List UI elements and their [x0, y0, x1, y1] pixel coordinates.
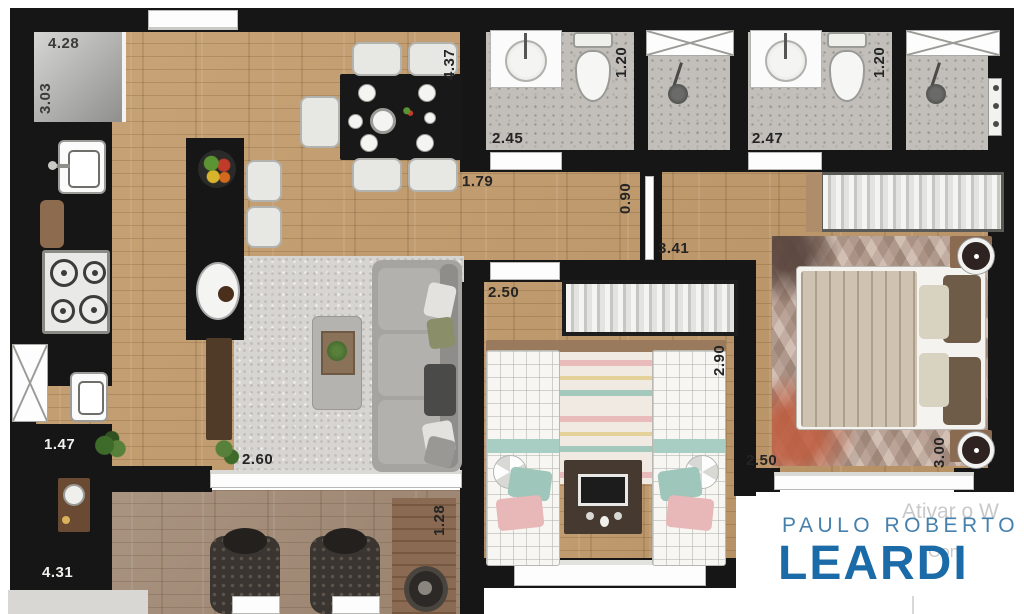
door-bathroom2	[748, 152, 822, 170]
serving-platter	[196, 262, 240, 320]
logo-block: Ativar o W Cont PAULO ROBERTO LEARDI	[756, 492, 1024, 614]
pillow	[919, 285, 949, 339]
shower-knob-icon	[993, 85, 999, 91]
watermark-line-fragment	[912, 596, 914, 614]
knob-icon	[600, 516, 609, 527]
door-bedroom2	[490, 262, 560, 280]
plate-icon	[348, 114, 363, 129]
shower-knob-icon	[993, 103, 999, 109]
dim-balcony-depth: 1.28	[432, 492, 447, 536]
double-bed	[796, 266, 986, 430]
dim-master-width: 2.50	[746, 453, 777, 468]
shower-head-icon	[668, 84, 688, 104]
wardrobe-master	[820, 172, 1004, 232]
basket-icon	[63, 484, 85, 506]
faucet-icon	[524, 33, 527, 59]
burner-icon	[79, 295, 108, 324]
cup-icon	[424, 112, 436, 124]
plant-icon	[92, 430, 128, 464]
tv-icon	[578, 474, 628, 506]
dim-living-width: 2.60	[242, 452, 273, 467]
stove	[42, 250, 110, 334]
jar-icon	[62, 516, 70, 524]
pillow	[426, 316, 456, 349]
lamp-icon	[958, 432, 994, 468]
fruit-bowl-icon	[198, 150, 236, 188]
knob-icon	[586, 512, 594, 520]
corridor-door	[645, 176, 654, 260]
shower-head-icon	[926, 84, 946, 104]
dim-bath1-width: 2.45	[492, 131, 523, 146]
dining-chair	[352, 158, 402, 192]
sideboard	[206, 338, 232, 440]
balcony-side-table	[332, 596, 380, 614]
dim-service-width: 1.47	[44, 437, 75, 452]
pillow	[919, 353, 949, 407]
toilet-tank	[827, 32, 867, 48]
pillow	[495, 495, 544, 532]
burner-icon	[51, 299, 75, 323]
wardrobe-end-panel	[806, 172, 822, 232]
lamp-icon	[958, 238, 994, 274]
plant-icon	[212, 436, 242, 468]
toilet-tank	[573, 32, 613, 48]
wall-bath2-divider	[892, 30, 906, 152]
dining-chair	[408, 158, 458, 192]
window-shower2	[906, 30, 1000, 56]
plate-icon	[416, 134, 434, 152]
dining-chair	[352, 42, 402, 76]
armchair-headrest	[323, 528, 367, 554]
sofa	[372, 260, 462, 472]
outside-pad	[8, 590, 148, 614]
door-bathroom1	[490, 152, 562, 170]
dim-bedroom2-width: 2.50	[488, 285, 519, 300]
armchair-headrest	[223, 528, 267, 554]
window-shower1	[646, 30, 734, 56]
dim-dining-wall: 4.37	[442, 32, 457, 80]
shower-knob-icon	[993, 121, 999, 127]
single-bed-left	[486, 350, 560, 566]
faucet-icon	[784, 33, 787, 59]
laundry-tub	[70, 372, 108, 422]
bed-blanket	[801, 271, 917, 427]
throw-blanket	[424, 364, 456, 416]
dining-table	[340, 74, 462, 160]
faucet-icon	[48, 161, 57, 170]
floor-plan: 4.28 3.03 4.37 1.79 2.45 1.20 2.47 1.20 …	[0, 0, 1024, 614]
pillow	[665, 495, 714, 532]
burner-icon	[50, 259, 78, 287]
dim-bath1-depth: 1.20	[614, 34, 629, 78]
island-stool	[246, 206, 282, 248]
toilet-bowl	[829, 50, 865, 102]
island-stool	[246, 160, 282, 202]
wall-dining-right	[460, 30, 486, 158]
dim-service-length: 4.31	[42, 565, 73, 580]
cutting-board	[40, 200, 64, 248]
dim-bedroom2-depth: 2.90	[712, 332, 727, 376]
toilet	[570, 32, 616, 106]
window-top	[148, 10, 238, 30]
window-x-icon	[13, 345, 47, 421]
plate-icon	[418, 84, 436, 102]
coffee-pot-icon	[218, 286, 234, 302]
toilet-bowl	[575, 50, 611, 102]
shower2-floor	[906, 56, 988, 150]
bed-runner	[653, 439, 725, 453]
brand-name: LEARDI	[778, 536, 969, 591]
shower1-floor	[648, 56, 730, 150]
wall-left	[10, 8, 36, 590]
plant-icon	[327, 341, 347, 361]
bathroom2-vanity	[750, 30, 822, 88]
knob-icon	[614, 512, 622, 520]
kitchen-sink	[58, 140, 106, 194]
table-center-icon	[418, 581, 432, 595]
dim-corridor-opening: 0.90	[618, 172, 633, 214]
wall-bedroom2-left	[460, 282, 484, 614]
single-bed-right	[652, 350, 726, 566]
window-master	[774, 472, 974, 490]
service-cabinet	[58, 478, 90, 532]
dim-corridor-length: 3.41	[658, 241, 689, 256]
burner-icon	[83, 261, 106, 284]
flower-vase-icon	[402, 106, 414, 118]
shower-panel	[988, 78, 1002, 136]
plate-icon	[360, 134, 378, 152]
plate-icon	[358, 84, 376, 102]
centerpiece-plate-icon	[370, 108, 396, 134]
window-laundry	[12, 344, 48, 422]
bed-runner	[487, 439, 559, 453]
window-x-icon	[907, 31, 999, 55]
balcony-side-table	[232, 596, 280, 614]
brand-line1: PAULO ROBERTO	[782, 514, 1019, 538]
dresser-tv	[564, 460, 642, 534]
window-x-icon	[647, 31, 733, 55]
ottoman-table	[312, 316, 362, 410]
dim-master-depth: 3.00	[932, 424, 947, 468]
dining-chair	[300, 96, 340, 148]
dim-hall-opening: 1.79	[462, 174, 493, 189]
dim-kitchen-top: 4.28	[48, 36, 79, 51]
wardrobe-bedroom2	[562, 280, 738, 336]
sink-basin	[68, 150, 100, 188]
toilet	[824, 32, 870, 106]
dim-bath2-width: 2.47	[752, 131, 783, 146]
dim-kitchen-left: 3.03	[38, 66, 53, 114]
dim-bath2-depth: 1.20	[872, 34, 887, 78]
wall-balcony	[108, 466, 212, 492]
balcony-slider	[210, 470, 462, 488]
round-table	[404, 566, 448, 612]
bathroom1-vanity	[490, 30, 562, 88]
tub-basin	[78, 381, 104, 415]
